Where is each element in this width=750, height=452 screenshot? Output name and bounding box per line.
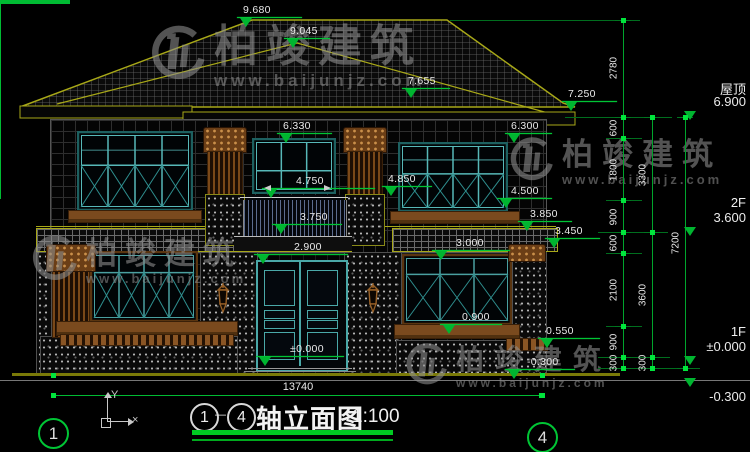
title-axis-bubble-end: 4 [227, 403, 256, 432]
elevation-marker-value: -0.300 [527, 356, 559, 368]
column-shaft-right [347, 151, 383, 196]
watermark-logo-icon [402, 342, 448, 393]
balcony-railing [243, 200, 347, 236]
dim-chain-value: 900 [609, 334, 620, 351]
dim-tick [650, 115, 655, 120]
elevation-marker-triangle [275, 225, 287, 234]
title-underline-thin [192, 439, 393, 441]
dim-tick [621, 18, 626, 23]
elevation-marker-triangle [257, 255, 269, 264]
watermark-url: www.baijunjz.com [86, 272, 246, 285]
elevation-marker-value: 7.250 [568, 88, 596, 100]
elevation-marker-value: 4.750 [296, 175, 324, 187]
elevation-marker-triangle [548, 239, 560, 248]
elevation-marker-triangle [521, 222, 533, 231]
window-1f-right [402, 254, 512, 330]
level-value: 3.600 [700, 210, 746, 225]
door-panel [307, 270, 338, 306]
watermark-logo-icon [146, 24, 206, 89]
axis-bubble-1: 1 [38, 418, 69, 449]
door-step [244, 371, 356, 372]
sill-2f-left [68, 210, 202, 223]
door-rail [307, 310, 338, 319]
watermark-logo-icon [506, 136, 554, 189]
elevation-marker-triangle [541, 339, 553, 348]
elevation-marker-value: 6.330 [283, 120, 311, 132]
watermark-url: www.baijunjz.com [214, 72, 425, 89]
elevation-marker-triangle [508, 134, 520, 143]
dim-chain-value: 1800 [609, 159, 620, 181]
ucs-y-label: Y [111, 389, 118, 401]
axis-bubble-4: 4 [527, 422, 558, 452]
swing-arrow-left [264, 185, 271, 191]
axis-grip [51, 393, 56, 398]
dim-tick [621, 251, 626, 256]
level-triangle [684, 378, 696, 387]
dim-chain-line [623, 20, 624, 368]
elevation-marker-value: 3.750 [300, 211, 328, 223]
elevation-marker-triangle [287, 39, 299, 48]
dim-chain-value: 3300 [638, 164, 649, 186]
total-width-dim-line [53, 395, 542, 396]
corner-capital-right [508, 244, 546, 262]
watermark-brand: 柏竣建筑 [86, 238, 246, 269]
elevation-marker-triangle [443, 325, 455, 334]
drawing-scale: 1:100 [352, 406, 400, 428]
ucs-origin-box [101, 418, 111, 428]
ucs-x-label: × [132, 414, 138, 426]
elevation-marker-triangle [385, 187, 397, 196]
elevation-marker-value: 0.900 [462, 311, 490, 323]
wall-lamp-right [364, 282, 382, 316]
dim-chain-value: 7200 [671, 232, 682, 254]
balcony-slab [234, 236, 352, 252]
door-rail [264, 320, 295, 329]
elevation-marker-value: 0.550 [546, 325, 574, 337]
dim-tick [621, 230, 626, 235]
level-name: 1F [706, 324, 746, 339]
level-triangle [684, 227, 696, 236]
elevation-marker-value: 6.300 [511, 120, 539, 132]
elevation-marker-value: 3.850 [530, 208, 558, 220]
dim-chain-value: 600 [609, 235, 620, 252]
door-rail [307, 320, 338, 329]
door-panel [264, 270, 295, 306]
door-step [248, 368, 352, 369]
dim-chain-value: 900 [609, 209, 620, 226]
elevation-marker-triangle [240, 18, 252, 27]
dim-tick [621, 136, 626, 141]
title-underline-thick [192, 430, 393, 435]
dim-tick [621, 324, 626, 329]
elevation-marker-value: 9.045 [290, 25, 318, 37]
elevation-marker-value: 3.450 [555, 225, 583, 237]
elevation-marker-triangle [565, 102, 577, 111]
title-axis-dash: — [215, 409, 226, 421]
elevation-marker-value: 4.500 [511, 185, 539, 197]
dim-tick [621, 366, 626, 371]
watermark-logo-icon [28, 234, 78, 289]
column-shaft-left [207, 151, 243, 196]
elevation-marker-value: 7.655 [408, 75, 436, 87]
dim-tick [650, 230, 655, 235]
axis-grip [51, 373, 56, 378]
dim-chain-value: 2100 [609, 279, 620, 301]
watermark: 柏竣建筑www.baijunjz.com [28, 234, 246, 289]
dim-tick [621, 198, 626, 203]
sill-1f-right [394, 324, 520, 339]
elevation-marker-triangle [500, 199, 512, 208]
dim-tick [621, 355, 626, 360]
title-axis-start-label: 1 [200, 409, 209, 427]
watermark: 柏竣建筑www.baijunjz.com [402, 342, 612, 393]
title-axis-end-label: 4 [237, 409, 246, 427]
watermark-url: www.baijunjz.com [456, 377, 612, 389]
elevation-marker-value: 4.850 [388, 173, 416, 185]
column-capital-right [343, 127, 387, 153]
level-value: ±0.000 [700, 339, 746, 354]
elevation-marker-value: 2.900 [294, 241, 322, 253]
elevation-marker-triangle [280, 134, 292, 143]
axis-grip [540, 373, 545, 378]
cad-canvas: 13740 Y × 1 — 4 轴立面图 1:100 9.6809.0457.6… [0, 0, 750, 452]
level-triangle [684, 356, 696, 365]
dim-tick [650, 366, 655, 371]
sill-2f-right [390, 211, 520, 224]
level-value: -0.300 [700, 389, 746, 404]
column-capital-left [203, 127, 247, 153]
axis-grip [540, 393, 545, 398]
elevation-marker-line [262, 188, 375, 189]
level-value: 6.900 [700, 94, 746, 109]
dim-chain-value: 300 [638, 355, 649, 372]
dim-tick [683, 366, 688, 371]
dim-tick [683, 115, 688, 120]
door-rail [264, 310, 295, 319]
elevation-marker-value: ±0.000 [290, 343, 324, 355]
elevation-marker-value: 9.680 [243, 4, 271, 16]
dim-chain-value: 3600 [638, 284, 649, 306]
dim-chain-value: 300 [609, 355, 620, 372]
elevation-marker-triangle [405, 89, 417, 98]
elevation-marker-triangle [259, 357, 271, 366]
watermark-brand: 柏竣建筑 [214, 25, 425, 69]
lattice-band-1f-left [60, 334, 234, 346]
swing-arrow-right [324, 185, 331, 191]
elevation-marker-triangle [435, 251, 447, 260]
dim-chain-line [685, 117, 686, 368]
elevation-marker-value: 3.000 [456, 237, 484, 249]
eave-fascia-left [20, 106, 192, 118]
grade-extension-line [0, 380, 750, 381]
extension-line [450, 20, 640, 21]
balcony-top-rail [240, 197, 348, 198]
elevation-marker-triangle [508, 370, 520, 379]
dim-chain-value: 600 [609, 120, 620, 137]
dim-chain-line [652, 117, 653, 368]
watermark: 柏竣建筑www.baijunjz.com [146, 24, 425, 89]
level-name: 2F [706, 195, 746, 210]
dim-tick [621, 115, 626, 120]
dim-tick [650, 355, 655, 360]
total-width-label: 13740 [270, 381, 326, 393]
window-2f-left [77, 131, 193, 216]
dim-chain-value: 2780 [609, 57, 620, 79]
